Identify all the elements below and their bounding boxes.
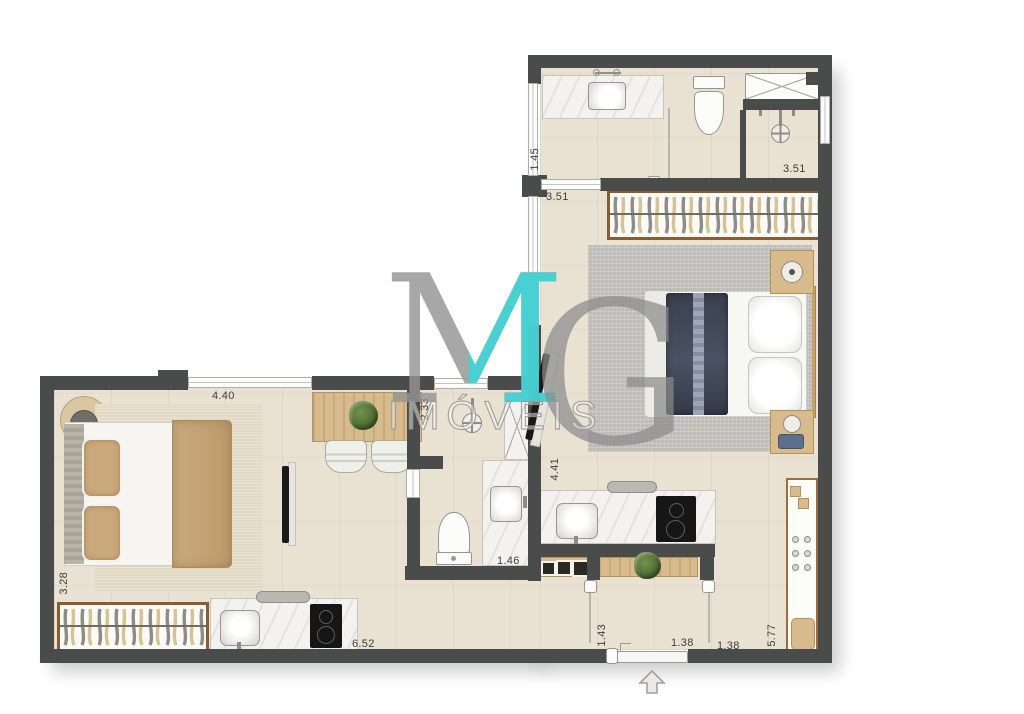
burner (317, 626, 335, 644)
wall-shower-divider (740, 110, 746, 180)
dimension-label: 3.28 (58, 572, 70, 595)
dimension-label: 1.46 (497, 555, 520, 567)
plant (349, 401, 378, 430)
wall (407, 456, 443, 469)
wardrobe (607, 190, 822, 240)
tray (607, 481, 657, 493)
tv-stand (288, 462, 296, 546)
bath-divider-line (668, 108, 670, 178)
duvet (172, 420, 232, 568)
toilet-bowl (438, 512, 470, 554)
dimension-label: 3.51 (783, 163, 806, 175)
tray (256, 591, 310, 603)
knob (792, 564, 799, 571)
pillow (748, 357, 802, 414)
plant (634, 552, 661, 579)
lamp-center (789, 269, 795, 275)
sliding-door (541, 179, 601, 190)
window (188, 377, 312, 388)
kitchen-sink (220, 610, 260, 646)
floor-transition-line (589, 593, 591, 643)
shower-arm (471, 398, 474, 414)
wall (688, 649, 832, 663)
burner (669, 503, 684, 518)
cooktop (656, 496, 696, 542)
wall (528, 325, 541, 581)
cabinet-item (791, 618, 815, 650)
dimension-label: 1.38 (717, 640, 740, 652)
shower-head-icon (462, 413, 482, 433)
tall-cabinet (786, 478, 818, 656)
cabinet-item (798, 498, 809, 509)
stool (541, 561, 556, 576)
entry-door-leaf (617, 651, 688, 663)
knob (804, 564, 811, 571)
shower-arm (779, 108, 782, 126)
dimension-label: 1.43 (596, 624, 608, 647)
wall-bath-divider (600, 178, 832, 191)
bench (538, 557, 588, 577)
pillow (82, 504, 122, 562)
flush-button (451, 556, 456, 561)
head-cushion (64, 424, 84, 564)
knob (804, 536, 811, 543)
bath1-door (406, 469, 420, 498)
dimension-label: 1.38 (671, 637, 694, 649)
wall (405, 566, 540, 580)
floor-plan: 4.40 3.28 6.52 2.33 1.46 1.45 3.51 3.51 … (0, 0, 1024, 714)
dimension-label: 5.77 (766, 624, 778, 647)
wall (488, 376, 540, 390)
wardrobe (57, 602, 209, 652)
entry-arrow-icon (636, 668, 668, 696)
opening-mark (584, 580, 597, 593)
cabinet-item (790, 486, 801, 497)
wall (40, 376, 54, 663)
wall (587, 544, 600, 580)
dimension-label: 1.45 (529, 148, 541, 171)
wall (528, 55, 541, 84)
chair (325, 440, 367, 473)
bathroom-sink (490, 486, 522, 522)
wall (806, 72, 819, 85)
dimension-label: 3.51 (546, 191, 569, 203)
floor-transition-line (708, 593, 710, 643)
tv-screen (282, 466, 289, 543)
window (820, 96, 830, 144)
window (528, 196, 538, 326)
knob (792, 536, 799, 543)
shower-head-icon (771, 124, 790, 143)
wall (743, 99, 819, 110)
dimension-label: 2.33 (419, 398, 431, 421)
bathroom-sink (588, 82, 626, 110)
kitchen-sink (556, 503, 598, 539)
toilet-tank (693, 76, 725, 89)
burner (319, 610, 333, 624)
pillow (82, 438, 122, 498)
duvet-runner (693, 293, 704, 415)
knob (792, 550, 799, 557)
dimension-label: 6.52 (352, 638, 375, 650)
wall (540, 544, 715, 557)
knob (804, 550, 811, 557)
faucet-icon (523, 496, 527, 508)
wall (700, 544, 714, 580)
dimension-label: 4.41 (549, 458, 561, 481)
door-bracket (620, 643, 631, 652)
table-lamp (783, 415, 801, 433)
shower-glass-niche (504, 392, 530, 460)
wall (158, 370, 188, 382)
wall (818, 55, 832, 663)
dimension-label: 4.40 (212, 390, 235, 402)
faucet-icon (595, 72, 621, 74)
opening-mark (702, 580, 715, 593)
wall (528, 55, 832, 68)
stool (556, 560, 572, 576)
bed-fold (645, 291, 667, 417)
burner (666, 520, 685, 539)
cooktop (310, 604, 342, 648)
bath1-sliding-door (434, 378, 488, 389)
decor-blue (778, 434, 804, 449)
wall (40, 649, 618, 663)
pillow (748, 296, 802, 353)
